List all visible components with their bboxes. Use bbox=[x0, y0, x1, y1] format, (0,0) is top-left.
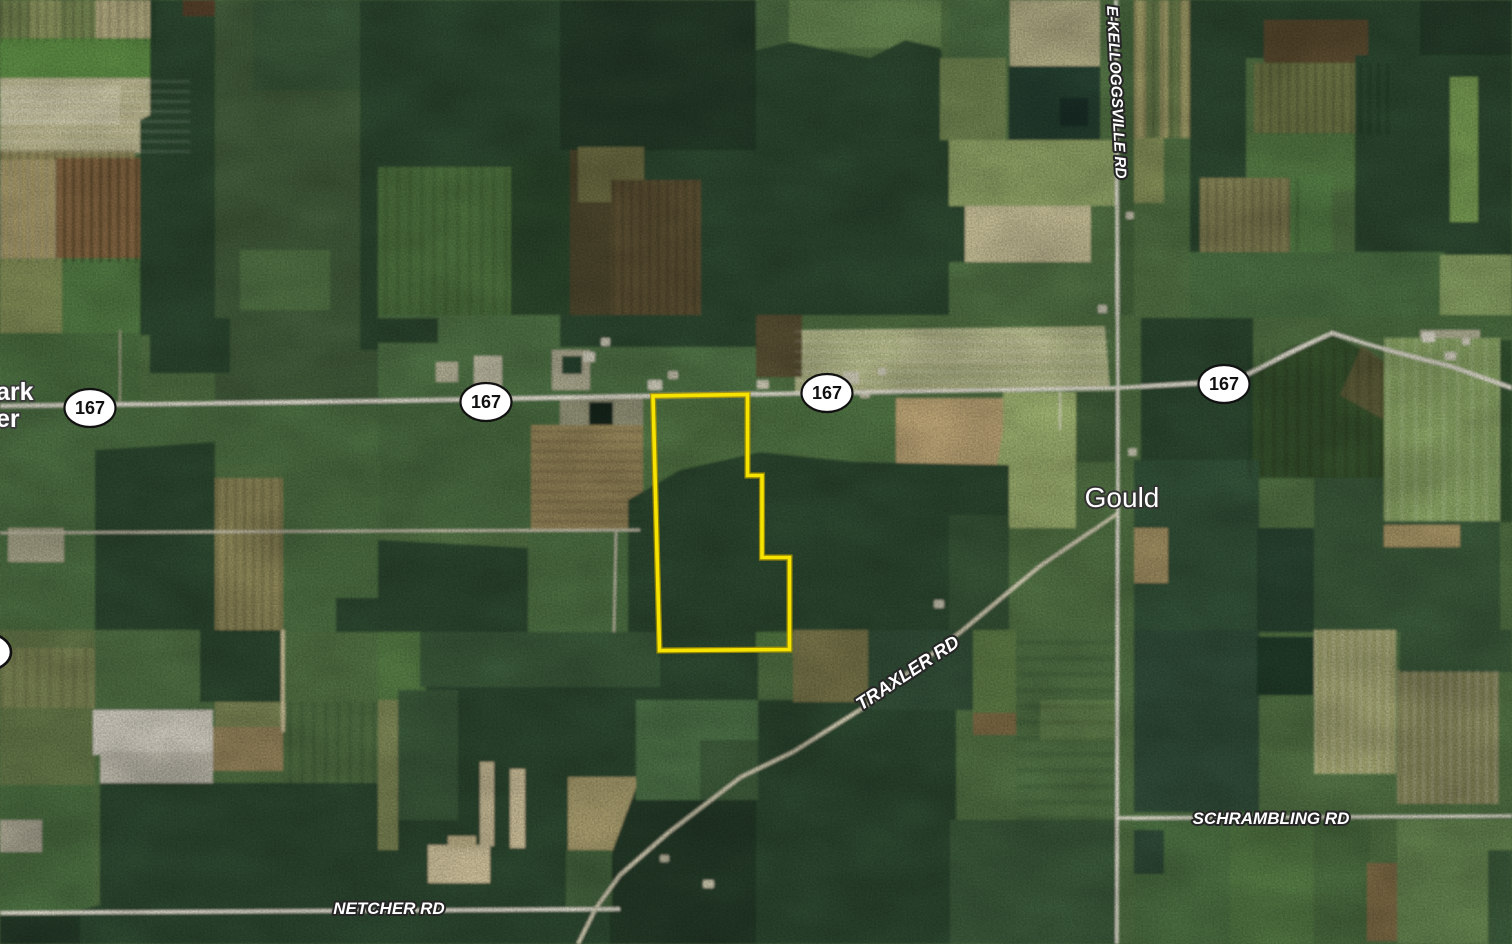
svg-text:167: 167 bbox=[75, 398, 105, 418]
svg-text:SCHRAMBLING RD: SCHRAMBLING RD bbox=[1193, 809, 1350, 828]
svg-text:Gould: Gould bbox=[1085, 482, 1160, 513]
svg-text:er: er bbox=[0, 405, 20, 433]
svg-text:167: 167 bbox=[1209, 374, 1239, 394]
svg-text:167: 167 bbox=[471, 392, 501, 412]
svg-text:ark: ark bbox=[0, 378, 34, 406]
svg-text:167: 167 bbox=[812, 383, 842, 403]
svg-text:NETCHER RD: NETCHER RD bbox=[333, 899, 444, 918]
